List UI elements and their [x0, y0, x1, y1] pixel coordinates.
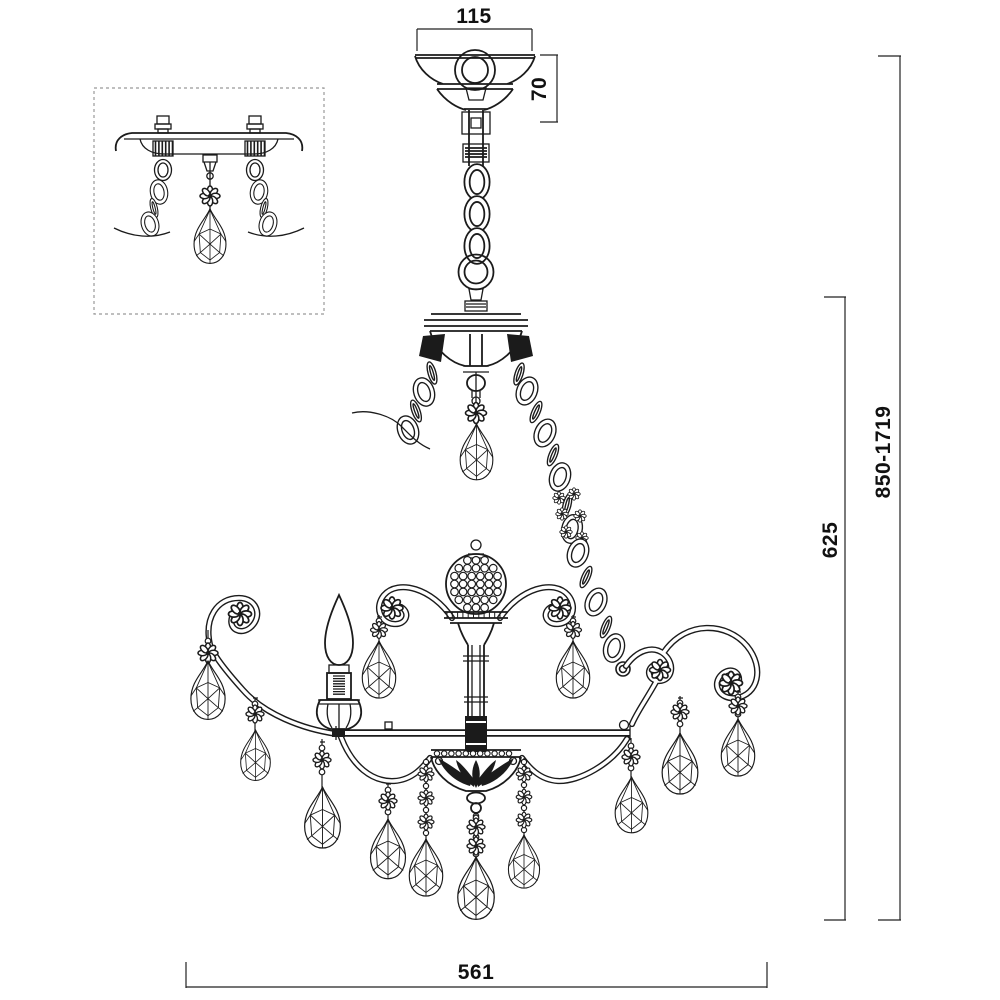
scroll-rosette — [381, 597, 403, 619]
rosette-bead — [671, 703, 689, 721]
chain-mount-right — [507, 334, 533, 362]
rosette-bead — [313, 751, 331, 769]
sphere-bead-pattern — [451, 557, 502, 612]
rosette-bead — [516, 789, 532, 805]
dimension-label-canopy-height: 70 — [528, 77, 551, 101]
rosette-bead — [246, 705, 264, 723]
crystal-drop — [508, 835, 539, 888]
rosette-bead — [200, 186, 220, 206]
candle-bulb — [325, 595, 353, 665]
crystal-drop — [371, 819, 406, 879]
rosette-bead — [198, 643, 218, 663]
crystal-drop — [305, 787, 341, 848]
dimension-canopy-height: 70 — [528, 55, 558, 122]
crystal-drop — [362, 641, 395, 698]
bowl-leaves — [436, 758, 517, 789]
bowl-rim-beads — [434, 751, 511, 756]
rosette-bead — [565, 622, 582, 639]
suspension-chain — [464, 164, 489, 264]
rosette-bead — [516, 766, 532, 782]
chandelier-dimension-drawing: 115 70 850-1719 625 561 — [0, 0, 1000, 1000]
crystal-drop — [458, 857, 494, 919]
under-hub-pendant — [460, 372, 493, 480]
crystal-drop — [556, 641, 589, 698]
scroll-rosette — [549, 597, 571, 619]
chain-mount-left — [419, 334, 445, 362]
crystal-drop — [409, 839, 442, 896]
dimension-overall-height: 850-1719 — [872, 56, 901, 920]
rosette-bead — [516, 812, 532, 828]
rosette-bead — [622, 748, 640, 766]
dimension-canopy-width: 115 — [417, 5, 532, 51]
crystal-drop — [460, 424, 493, 480]
hub-dome — [419, 314, 533, 372]
crystal-drop — [721, 719, 754, 776]
dimension-body-width: 561 — [186, 961, 767, 988]
dimension-label-body-height: 625 — [819, 522, 842, 559]
rosette-bead — [467, 837, 485, 855]
rosette-bead — [729, 697, 747, 715]
scroll-rosette — [229, 603, 252, 626]
inset-detail-box — [94, 88, 324, 314]
rosette-bead — [379, 792, 397, 810]
rosette-bead — [418, 766, 434, 782]
dimension-label-canopy-width: 115 — [456, 5, 491, 28]
scroll-rosette — [720, 672, 743, 695]
hanger-rod — [462, 110, 490, 166]
candle — [317, 595, 361, 737]
rosette-bead — [418, 790, 434, 806]
crystal-drop — [241, 730, 271, 781]
crystal-drop — [191, 661, 225, 720]
technical-drawing-page: 115 70 850-1719 625 561 — [0, 0, 1000, 1000]
rosette-bead — [466, 403, 487, 424]
canopy-assembly — [415, 50, 535, 166]
central-column — [444, 540, 508, 752]
crystal-drop — [662, 733, 698, 794]
dimension-body-height: 625 — [819, 297, 846, 920]
dimension-label-overall-height: 850-1719 — [872, 406, 895, 499]
rosette-bead — [371, 622, 388, 639]
scroll-rosette — [650, 660, 671, 681]
rosette-bead — [467, 818, 485, 836]
support-chain-left-broken — [352, 361, 439, 449]
center-bowl — [431, 750, 521, 819]
rosette-bead — [418, 814, 434, 830]
crystal-drop — [615, 777, 648, 833]
dimension-label-body-width: 561 — [458, 961, 495, 984]
